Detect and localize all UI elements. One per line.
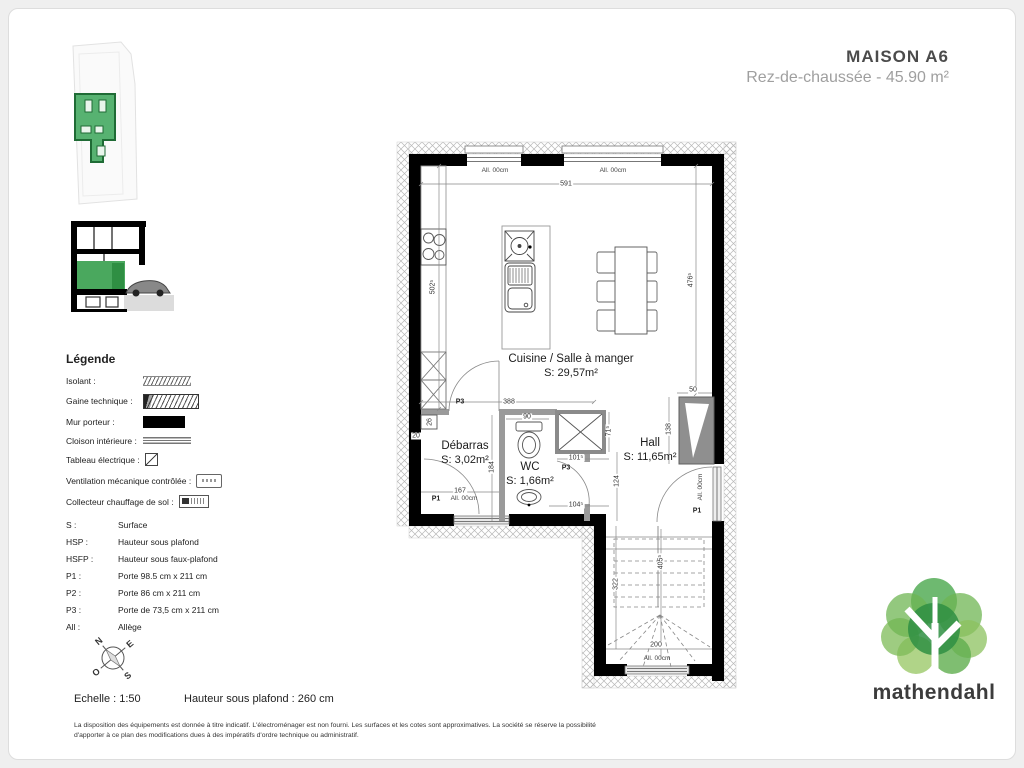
- legend-item-isolant: Isolant :: [66, 376, 286, 386]
- compass-e: E: [124, 638, 135, 650]
- page-title: MAISON A6: [846, 47, 949, 67]
- legend: Légende Isolant : Gaine technique : Mur …: [66, 352, 286, 639]
- dim-322: 322: [613, 577, 620, 591]
- dim-476: 476⁵: [688, 272, 695, 289]
- door-label-p3-debarras: P3: [456, 399, 465, 406]
- page-subtitle: Rez-de-chaussée - 45.90 m²: [746, 69, 949, 87]
- technical-shaft: [557, 412, 604, 452]
- isolant-hatch-icon: [143, 376, 191, 386]
- electrical-panel-icon: [145, 453, 158, 466]
- wc-sink: [517, 490, 541, 507]
- disclaimer: La disposition des équipements est donné…: [74, 721, 634, 741]
- site-thumbnail: [59, 34, 189, 214]
- dim-104: 104⁵: [568, 502, 585, 509]
- dim-26: 26: [427, 417, 434, 427]
- dining-set: [597, 247, 657, 334]
- floorplan-drawing: [389, 119, 745, 697]
- room-label-debarras: Débarras S: 3,02m²: [441, 440, 489, 466]
- room-label-cuisine: Cuisine / Salle à manger S: 29,57m²: [508, 353, 633, 379]
- section-drawing: [64, 217, 179, 312]
- logo-wordmark: mathendahl: [854, 681, 1014, 705]
- dim-50: 50: [688, 387, 698, 394]
- scale-text: Echelle : 1:50: [74, 693, 141, 705]
- toilet: [516, 422, 542, 458]
- car-silhouette: [126, 281, 170, 293]
- legend-abbrev-p1: P1 :Porte 98.5 cm x 211 cm: [66, 571, 286, 581]
- legend-abbrev-hsfp: HSFP :Hauteur sous faux-plafond: [66, 554, 286, 564]
- legend-abbrev-p2: P2 :Porte 86 cm x 211 cm: [66, 588, 286, 598]
- dim-405: 405⁵: [658, 554, 665, 571]
- dim-502: 502⁵: [430, 279, 437, 296]
- door-label-p3-wc: P3: [562, 465, 571, 472]
- compass-n: N: [93, 635, 104, 647]
- window-label-top-left: All. 00cm: [482, 168, 509, 175]
- legend-title: Légende: [66, 352, 286, 366]
- legend-abbrev-hsp: HSP :Hauteur sous plafond: [66, 537, 286, 547]
- technical-duct-icon: [143, 394, 199, 409]
- legend-item-vmc: Ventilation mécanique contrôlée :: [66, 474, 286, 488]
- dim-90: 90: [522, 414, 532, 421]
- dim-388: 388: [502, 399, 516, 406]
- kitchen-island: [502, 226, 550, 349]
- right-wall-window: [679, 397, 714, 464]
- dim-184: 184: [489, 460, 496, 474]
- door-label-p1-back: P1: [432, 496, 441, 503]
- legend-item-gaine: Gaine technique :: [66, 394, 286, 409]
- load-bearing-wall-icon: [143, 416, 185, 428]
- legend-abbrev-s: S :Surface: [66, 520, 286, 530]
- compass-s: S: [122, 670, 133, 682]
- window-label-entry: All. 00cm: [698, 474, 705, 501]
- island-sink: [505, 263, 535, 312]
- compass-o: O: [90, 666, 102, 678]
- dim-138: 138: [666, 422, 673, 436]
- room-label-hall: Hall S: 11,65m²: [624, 437, 677, 463]
- window-label-back: All. 00cm: [451, 496, 478, 503]
- ceiling-height-text: Hauteur sous plafond : 260 cm: [184, 693, 334, 705]
- legend-item-mur: Mur porteur :: [66, 416, 286, 428]
- tree-logo-icon: [849, 569, 1016, 684]
- legend-item-cloison: Cloison intérieure :: [66, 436, 286, 446]
- window-label-top-right: All. 00cm: [600, 168, 627, 175]
- legend-abbrev-p3: P3 :Porte de 73,5 cm x 211 cm: [66, 605, 286, 615]
- dim-20: 20: [411, 433, 421, 440]
- dim-101: 101⁵: [568, 455, 585, 462]
- legend-item-tableau: Tableau électrique :: [66, 453, 286, 466]
- vmc-icon: [196, 474, 222, 488]
- dim-124: 124: [614, 474, 621, 488]
- dim-200: 200: [649, 642, 663, 649]
- door-label-p1-entry: P1: [693, 508, 702, 515]
- interior-partition-icon: [143, 437, 191, 444]
- compass-icon: N E S O: [79, 624, 147, 688]
- dim-167: 167: [453, 488, 467, 495]
- room-label-wc: WC S: 1,66m²: [506, 461, 554, 487]
- legend-item-collecteur: Collecteur chauffage de sol :: [66, 495, 286, 508]
- dim-591: 591: [559, 181, 573, 188]
- floor-heating-manifold-icon: [179, 495, 209, 508]
- dim-71: 71⁵: [606, 425, 613, 438]
- plan-sheet: MAISON A6 Rez-de-chaussée - 45.90 m²: [8, 8, 1016, 760]
- window-label-stairs: All. 00cm: [644, 656, 671, 663]
